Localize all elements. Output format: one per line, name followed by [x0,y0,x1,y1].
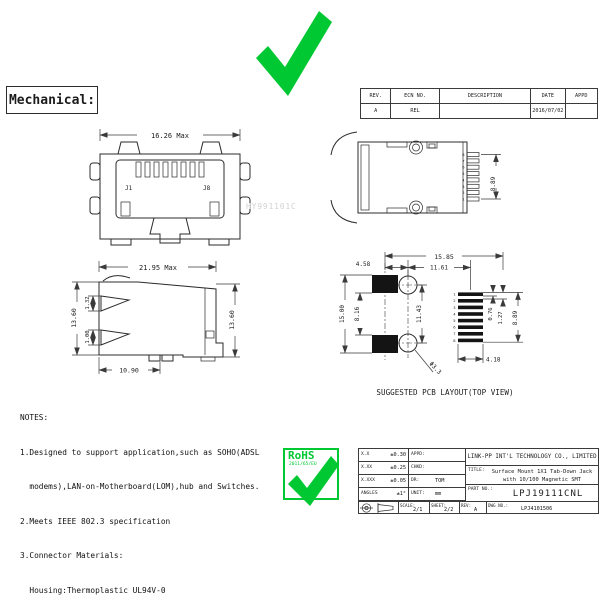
side-standoff-dim: 1.00 [85,330,91,343]
note-line: 1.Designed to support application,such a… [20,447,297,459]
side-shield-spring [103,276,130,281]
svg-text:7: 7 [462,158,464,163]
svg-text:4: 4 [453,311,456,316]
sheet-title: Mechanical: [9,93,95,108]
tolerance-row: X.XXX ±0.05 [359,475,409,488]
rev-cell: REV: A [460,501,487,513]
note-line: modems),LAN-on-Motherboard(LOM),hub and … [20,481,297,493]
watermark: HY991101C [246,202,297,211]
front-width-dim: 16.26 Max [151,132,189,140]
pin1-label: J1 [125,185,133,192]
title-block: X.X ±0.30 X.XX ±0.25 X.XXX ±0.05 ANGLES … [358,448,599,514]
svg-text:8: 8 [462,152,465,157]
pcb-pad-gap-dim: 8.16 [354,306,361,321]
side-base-dim: 10.90 [119,367,139,375]
dwg-no-value: LPJ4101506 [521,506,552,512]
ground-pad-bottom [372,335,398,353]
side-length-dim: 21.95 Max [139,264,177,272]
unit-cell: UNIT: mm [409,488,466,501]
shield-spring-top [331,132,357,155]
pcb-hole-span-dim: 11.43 [416,305,423,323]
side-height-left-dim: 13.60 [70,308,78,328]
pcb-pad-pitch-dim: 1.27 [498,311,504,324]
svg-text:7: 7 [453,331,455,336]
rj45-pin-slots [136,162,204,177]
third-angle-projection-icon [359,502,397,513]
rev-col-header: REV. [361,89,391,103]
pad-numbers: 12 34 56 78 [453,292,456,343]
projection-symbol-cell [359,501,399,513]
signal-pads [458,292,483,342]
svg-text:2: 2 [453,298,455,303]
tolerance-row: X.XX ±0.25 [359,462,409,475]
note-line: Housing:Thermoplastic UL94V-0 [20,585,297,597]
pcb-overall-height-dim: 15.00 [339,305,346,323]
svg-text:8: 8 [453,338,456,343]
date-value: 2016/07/02 [531,104,565,118]
svg-text:5: 5 [453,318,455,323]
rev-value-tb: A [474,507,477,513]
company-name: LINK-PP INT'L TECHNOLOGY CO., LIMITED [466,449,598,466]
top-view: 87 65 43 21 8.89 [325,128,510,228]
ecn-value: REL [391,104,439,118]
pcb-pad-width-dim: 0.76 [488,307,494,320]
svg-text:4: 4 [462,177,465,182]
title-label: TITLE: [468,468,485,473]
part-no-cell: PART NO.: LPJ19111CNL [466,485,598,501]
svg-text:1: 1 [462,197,465,202]
svg-text:3: 3 [462,184,464,189]
appd-cell: APPD: [409,449,466,462]
pcb-hole-to-pads-dim: 11.61 [430,265,448,272]
front-top-tab-right [200,142,222,154]
side-body-outline [99,282,223,357]
svg-text:1: 1 [453,292,456,297]
part-no-label: PART NO.: [468,487,493,492]
svg-text:2: 2 [462,190,464,195]
date-col-header: DATE [531,89,565,103]
dwg-no-cell: DWG NO.: LPJ4101506 [487,501,598,513]
svg-text:5: 5 [462,171,464,176]
front-top-tab-left [118,142,140,154]
side-contact-dim: 1.32 [85,296,91,309]
pcb-pad-to-hole-dim: 4.58 [356,261,371,268]
top-view-pins [467,153,479,202]
notes-block: NOTES: 1.Designed to support application… [20,389,297,600]
svg-text:6: 6 [453,325,456,330]
ecn-col-header: ECN NO. [391,89,439,103]
top-view-pin-numbers: 87 65 43 21 [462,152,465,202]
side-view: 21.95 Max 13.60 1.32 1.00 13.60 10.90 [58,258,263,390]
revision-table: REV. ECN NO. DESCRIPTION DATE APPD A REL… [360,88,598,119]
sheet-cell: SHEET: 2/2 [430,501,460,513]
pcb-caption: SUGGESTED PCB LAYOUT(TOP VIEW) [376,388,513,397]
product-title-line1: Surface Mount 1X1 Tab-Down Jack [488,468,596,476]
revision-table-row: A REL 2016/07/02 [361,104,597,118]
dr-cell: DR: TOM [409,475,466,488]
description-value [440,104,531,118]
contact-wedge-upper [101,296,129,311]
chkd-cell: CHKD: [409,462,466,475]
tolerance-row: ANGLES ±1° [359,488,409,501]
product-title-line2: with 10/100 Magnetic SMT [488,476,596,484]
pin8-label: J8 [203,185,211,192]
pcb-pad-span-dim: 8.89 [512,310,519,325]
ground-pad-top [372,275,398,293]
rohs-check-icon [286,452,340,508]
front-body-outline [100,154,240,239]
side-height-right-dim: 13.60 [228,310,236,330]
tolerance-row: X.X ±0.30 [359,449,409,462]
pcb-layout: 12 34 56 78 15.85 4.58 11.61 15.00 8.16 … [333,248,568,400]
appd-col-header: APPD [566,89,597,103]
description-col-header: DESCRIPTION [440,89,531,103]
top-pin-span-dim: 8.89 [490,176,497,191]
revision-table-header: REV. ECN NO. DESCRIPTION DATE APPD [361,89,597,104]
svg-text:3: 3 [453,305,455,310]
approved-check-icon [252,6,336,98]
part-number: LPJ19111CNL [498,489,598,499]
pcb-pad-length-dim: 4.18 [486,357,501,364]
note-line: 3.Connector Materials: [20,550,297,562]
title-cell: TITLE: Surface Mount 1X1 Tab-Down Jack w… [466,466,598,485]
front-view: 16.26 Max J1 J8 [85,126,255,252]
rev-value: A [361,104,391,118]
pcb-overall-width-dim: 15.85 [434,253,454,261]
scale-cell: SCALE: 2/1 [399,501,430,513]
notes-heading: NOTES: [20,412,297,424]
shield-spring-bottom [331,200,357,223]
note-line: 2.Meets IEEE 802.3 specification [20,516,297,528]
drawing-sheet: Mechanical: REV. ECN NO. DESCRIPTION DAT… [0,0,600,600]
appd-value [566,104,597,118]
svg-text:6: 6 [462,165,465,170]
contact-wedge-lower [101,330,129,345]
sheet-value: 2/2 [444,507,453,513]
scale-value: 2/1 [413,507,422,513]
sheet-title-box: Mechanical: [6,86,98,114]
